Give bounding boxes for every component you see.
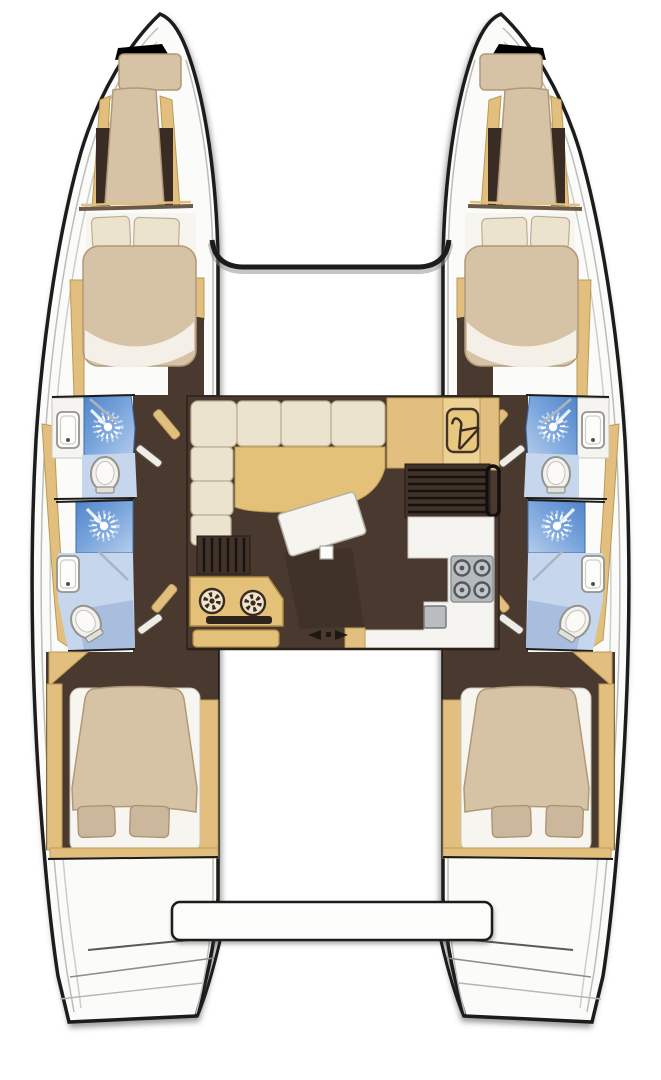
table-leg (320, 546, 333, 559)
instrument-slot (206, 616, 272, 624)
settee-cushion (191, 481, 233, 515)
side-cabinet (480, 398, 499, 470)
wardrobe-cabinet (387, 398, 443, 468)
forward-crossbeam (212, 240, 449, 267)
catamaran-floor-plan (0, 0, 661, 1080)
settee-cushion (281, 401, 331, 446)
nav-station (190, 577, 283, 647)
settee-cushion (191, 401, 237, 447)
port-companionway-stairs[interactable] (197, 536, 250, 574)
galley-sink (424, 606, 446, 628)
settee-cushion (331, 401, 385, 446)
galley-trim (345, 628, 365, 648)
floor-plan-canvas (0, 0, 661, 1080)
settee-cushion (237, 401, 281, 446)
starboard-companionway-stairs[interactable] (405, 464, 499, 518)
nav-seat (193, 630, 279, 647)
saloon (187, 396, 499, 649)
cockpit-bench[interactable] (172, 902, 492, 940)
wardrobe (387, 398, 480, 468)
settee-cushion (191, 447, 233, 481)
